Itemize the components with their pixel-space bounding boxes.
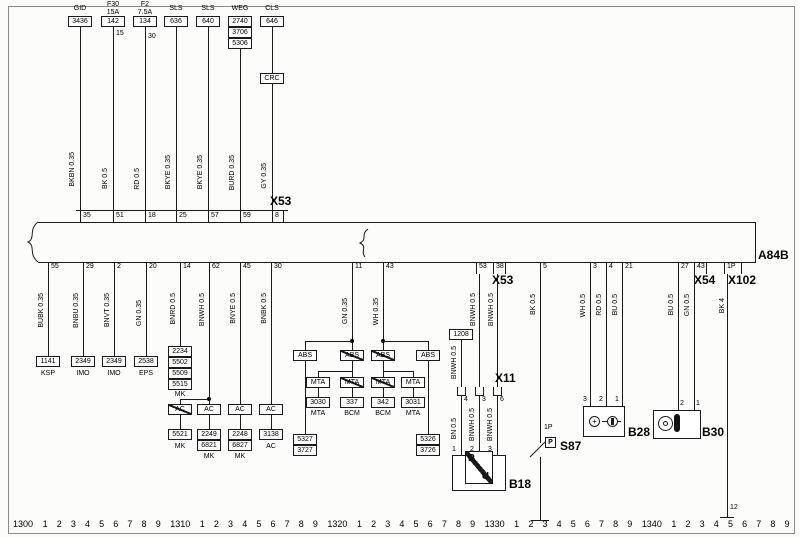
lamp-filament-icon [611, 418, 614, 425]
wire [145, 27, 146, 210]
wiring-diagram: GID 3436 BKBN 0.35 F30 15A 142 15 BK 0.5… [0, 0, 800, 537]
pin-number: 1P [727, 263, 736, 271]
ruler-minor: 6 [423, 519, 437, 531]
pin-tick [113, 210, 114, 222]
frame-left [8, 6, 9, 533]
dest-label: KSP [36, 370, 60, 378]
dest-label: MK [168, 443, 192, 451]
ruler-minor: 7 [123, 519, 137, 531]
wire-label: BNVT 0.35 [104, 293, 112, 327]
pin-number: 57 [211, 212, 219, 220]
pin-number: 1 [696, 400, 700, 408]
wire [180, 274, 181, 346]
wire [540, 457, 541, 520]
ruler-minor: 4 [709, 519, 723, 531]
ruler-major: 1340 [637, 519, 667, 531]
wire-label: BNBK 0.5 [261, 293, 269, 324]
pin-tick [383, 262, 384, 274]
wire-label: BKYE 0.35 [165, 155, 173, 189]
pin-number: 3 [583, 396, 587, 404]
wire-label: BURD 0.35 [229, 155, 237, 190]
pin-tick [272, 210, 273, 222]
ruler-minor: 2 [209, 519, 223, 531]
wire-label: BNWH 0.5 [488, 293, 496, 326]
sensor-u-label: U [482, 471, 489, 482]
ruler-minor: 1 [38, 519, 52, 531]
wire-label: BKBN 0.35 [69, 152, 77, 187]
splice-box-mta: MTA [371, 377, 395, 388]
splice-box-mta: MTA [340, 377, 364, 388]
wire-label: RD 0.5 [134, 168, 142, 190]
splice-box-ac: AC [259, 404, 283, 415]
wire-label: BNBU 0.35 [73, 293, 81, 328]
ruler-minor: 9 [623, 519, 637, 531]
wire [240, 274, 241, 404]
wire [271, 274, 272, 404]
dest-label: MK [197, 453, 221, 461]
pin-tick [622, 262, 623, 274]
pin-number: 55 [51, 263, 59, 271]
pin-number: 2 [117, 263, 121, 271]
pin-number: 3 [593, 263, 597, 271]
ruler-minor: 2 [681, 519, 695, 531]
pin-tick [240, 210, 241, 222]
pin-number: 30 [274, 263, 282, 271]
device-label-s87: S87 [560, 440, 581, 453]
wire-label: BNWH 0.5 [451, 346, 459, 379]
wire [240, 415, 241, 429]
wire-label: RD 0.5 [596, 294, 604, 316]
tap-number: 15 [116, 30, 124, 38]
wire [590, 274, 591, 406]
ruler-minor: 8 [451, 519, 465, 531]
pin-tick [476, 262, 477, 274]
ruler-minor: 4 [395, 519, 409, 531]
wire [383, 361, 384, 377]
pin-number: 14 [183, 263, 191, 271]
ruler-group: 1340123456789 [637, 519, 794, 531]
branch-wire [180, 399, 210, 400]
wire-label: BK 0.5 [530, 294, 538, 315]
wire [352, 388, 353, 397]
pin-number: 62 [212, 263, 220, 271]
pin-number: 43 [386, 263, 394, 271]
ruler-minor: 9 [151, 519, 165, 531]
ruler-minor: 7 [594, 519, 608, 531]
wire [83, 274, 84, 356]
ruler-group: 1300123456789 [8, 519, 165, 531]
ruler-minor: 7 [437, 519, 451, 531]
ruler-minor: 6 [109, 519, 123, 531]
wire [540, 274, 541, 443]
wire [209, 415, 210, 429]
bus-break-symbol [352, 228, 374, 258]
bus-right-edge [755, 222, 756, 263]
wire [80, 27, 81, 210]
ruler-major: 1330 [480, 519, 510, 531]
wire [479, 274, 480, 387]
branch-wire [305, 341, 352, 342]
pin-number: 27 [681, 263, 689, 271]
circuit-ref-box: 3727 [293, 445, 317, 456]
ruler-major: 1320 [322, 519, 352, 531]
ruler-minor: 9 [780, 519, 794, 531]
wire [428, 341, 429, 350]
ruler-minor: 5 [723, 519, 737, 531]
circuit-ref-box: 142 [101, 16, 125, 27]
pressure-sensor-icon: P U [465, 451, 493, 484]
circuit-ref-box: 5327 [293, 434, 317, 445]
splice-box-abs: ABS [371, 350, 395, 361]
pin-tick [271, 262, 272, 274]
ruler-minor: 3 [695, 519, 709, 531]
circuit-ref-box: 5521 [168, 429, 192, 440]
dest-label: IMO [71, 370, 95, 378]
circuit-ref-box: 3030 [306, 397, 330, 408]
ruler-major: 1310 [165, 519, 195, 531]
circuit-ref-box: 6821 [197, 440, 221, 451]
ruler-minor: 5 [95, 519, 109, 531]
ruler-minor: 8 [609, 519, 623, 531]
pin-tick [352, 262, 353, 274]
circuit-ref-box: 640 [196, 16, 220, 27]
ruler-minor: 4 [552, 519, 566, 531]
connector-pin-icon [493, 387, 502, 396]
pin-tick [208, 210, 209, 222]
circuit-ref-box: 2740 [228, 16, 252, 27]
ruler-minor: 5 [252, 519, 266, 531]
ruler-minor: 1 [667, 519, 681, 531]
pin-number: 20 [149, 263, 157, 271]
wire-label: BNWH 0.5 [469, 408, 477, 441]
ruler-minor: 3 [538, 519, 552, 531]
ruler-minor: 8 [294, 519, 308, 531]
ruler-minor: 6 [738, 519, 752, 531]
wire-label: WH 0.5 [580, 294, 588, 317]
wire [272, 84, 273, 210]
wire [622, 274, 623, 406]
ruler-minor: 2 [52, 519, 66, 531]
ruler-minor: 9 [308, 519, 322, 531]
circuit-ref-box: 5306 [228, 38, 252, 49]
circuit-ref-box: 2538 [134, 356, 158, 367]
splice-box-abs: ABS [293, 350, 317, 361]
inline-ref-box: CRC [260, 73, 284, 84]
pin-number: 2 [599, 396, 603, 404]
pin-tick [724, 262, 725, 274]
wire [413, 388, 414, 397]
circuit-ref-box: 2234 [168, 346, 192, 357]
pin-number: 25 [179, 212, 187, 220]
wire-label: BK 4 [719, 298, 727, 313]
wire [497, 396, 498, 455]
pin-number: 43 [697, 263, 705, 271]
wire [606, 274, 607, 406]
dest-label: MTA [306, 410, 330, 418]
circuit-ref-box: 2248 [228, 429, 252, 440]
pin-number: 59 [243, 212, 251, 220]
wire-label: GN 0.35 [136, 300, 144, 326]
coordinate-ruler: 1300123456789131012345678913201234567891… [8, 519, 794, 531]
pin-tick [145, 210, 146, 222]
connector-label-x53-bottom: X53 [492, 274, 513, 287]
ruler-group: 1330123456789 [480, 519, 637, 531]
dest-label: MK [168, 391, 192, 399]
ruler-minor: 6 [580, 519, 594, 531]
wire [678, 274, 679, 410]
ruler-minor: 4 [238, 519, 252, 531]
wire-label: BN 0.5 [451, 418, 459, 439]
connector-label-x11: X11 [495, 372, 516, 385]
pin-tick [180, 262, 181, 274]
pin-row-line [76, 210, 288, 211]
splice-box-mta: MTA [401, 377, 425, 388]
wire [461, 340, 462, 387]
wire [305, 341, 306, 350]
device-label-b18: B18 [509, 478, 531, 491]
pin-tick [540, 262, 541, 274]
tap-number: 30 [148, 33, 156, 41]
wire [727, 274, 728, 517]
wire-label: WH 0.35 [373, 298, 381, 325]
ruler-group: 1310123456789 [165, 519, 322, 531]
wire-label: BUBK 0.35 [38, 293, 46, 328]
dest-label: BCM [340, 410, 364, 418]
dest-label: EPS [134, 370, 158, 378]
wire [208, 27, 209, 210]
ruler-minor: 7 [280, 519, 294, 531]
dest-label: BCM [371, 410, 395, 418]
pin-number: 35 [83, 212, 91, 220]
connector-label-x54: X54 [694, 274, 715, 287]
pin-tick [176, 210, 177, 222]
pin-tick [283, 210, 284, 222]
dest-label: MTA [401, 410, 425, 418]
device-label-b28: B28 [628, 426, 650, 439]
circuit-ref-box: 1141 [36, 356, 60, 367]
pin-tick [83, 262, 84, 274]
wire [479, 396, 480, 455]
pin-tick [606, 262, 607, 274]
pin-tick [209, 262, 210, 274]
circuit-ref-box: 5515 [168, 379, 192, 390]
wire-label: BNRD 0.5 [170, 293, 178, 325]
circuit-ref-box: 3726 [416, 445, 440, 456]
ruler-minor: 8 [766, 519, 780, 531]
circuit-ref-box: 3138 [259, 429, 283, 440]
wire [180, 415, 181, 429]
pin-number: 4 [464, 396, 468, 404]
circuit-ref-box: 1208 [449, 329, 473, 340]
connector-pin-icon [457, 387, 466, 396]
wire-label: BKYE 0.35 [197, 155, 205, 189]
ruler-minor: 1 [195, 519, 209, 531]
ruler-minor: 8 [137, 519, 151, 531]
branch-wire [383, 341, 428, 342]
circuit-ref-box: 3706 [228, 27, 252, 38]
circuit-ref-box: 337 [340, 397, 364, 408]
ruler-minor: 6 [266, 519, 280, 531]
wire [113, 27, 114, 210]
wire [428, 361, 429, 434]
circuit-ref-box: 3436 [68, 16, 92, 27]
branch-wire [318, 371, 352, 372]
ruler-minor: 1 [352, 519, 366, 531]
wire [176, 27, 177, 210]
wire-label: BNWH 0.5 [199, 293, 207, 326]
pin-number: 1 [452, 446, 456, 454]
circuit-ref-box: 636 [164, 16, 188, 27]
circuit-ref-box: 5326 [416, 434, 440, 445]
ruler-minor: 3 [381, 519, 395, 531]
pin-number: 51 [116, 212, 124, 220]
wire-label: GN 0.5 [684, 294, 692, 316]
connector-label-x53-top: X53 [270, 195, 291, 208]
wire [271, 415, 272, 429]
wire-label: BNWH 0.5 [487, 408, 495, 441]
frame-bottom [8, 533, 794, 534]
wire [272, 27, 273, 73]
pin-number: 4 [609, 263, 613, 271]
pin-number: 18 [148, 212, 156, 220]
pin-number: 53 [479, 263, 487, 271]
pressure-switch-icon: P [545, 437, 556, 448]
circuit-ref-box: 134 [133, 16, 157, 27]
wire-label: GY 0.35 [261, 163, 269, 189]
pin-number: 1 [615, 396, 619, 404]
pin-number: 5 [543, 263, 547, 271]
ruler-minor: 3 [223, 519, 237, 531]
wire [209, 274, 210, 404]
wire-label: BU 0.5 [612, 294, 620, 315]
splice-box-abs: ABS [340, 350, 364, 361]
dest-label: MK [228, 453, 252, 461]
module-label-a84b: A84B [758, 249, 789, 262]
circuit-ref-box: 5509 [168, 368, 192, 379]
ruler-minor: 2 [367, 519, 381, 531]
wire [694, 274, 695, 410]
splice-box-ac: AC [168, 404, 192, 415]
bus-left-brace [24, 220, 40, 264]
circuit-ref-box: 2249 [197, 429, 221, 440]
circuit-ref-box: 342 [371, 397, 395, 408]
pin-number: 21 [625, 263, 633, 271]
pin-number: 29 [86, 263, 94, 271]
pin-tick [240, 262, 241, 274]
ruler-major: 1300 [8, 519, 38, 531]
ruler-minor: 3 [66, 519, 80, 531]
ruler-minor: 4 [80, 519, 94, 531]
splice-box-mta: MTA [306, 377, 330, 388]
dest-label: IMO [102, 370, 126, 378]
device-label-b30: B30 [702, 426, 724, 439]
ruler-minor: 9 [466, 519, 480, 531]
connector-label-x102: X102 [728, 274, 756, 287]
wire [461, 396, 462, 455]
splice-box-abs: ABS [416, 350, 440, 361]
circuit-ref-box: 5502 [168, 357, 192, 368]
component-title: CLS [252, 5, 292, 13]
ruler-group: 1320123456789 [322, 519, 479, 531]
wire [318, 388, 319, 397]
display-bar-icon [674, 414, 680, 432]
wire-label: BK 0.5 [102, 168, 110, 189]
pin-tick [114, 262, 115, 274]
wire [146, 274, 147, 356]
wire-label: GN 0.35 [342, 298, 350, 324]
splice-box-ac: AC [197, 404, 221, 415]
wire [352, 361, 353, 377]
wire-end-number: 12 [730, 504, 738, 512]
wire [240, 49, 241, 210]
pin-number: 38 [496, 263, 504, 271]
ruler-minor: 5 [566, 519, 580, 531]
pin-tick [48, 262, 49, 274]
wire-label: BU 0.5 [668, 294, 676, 315]
pin-number: 6 [500, 396, 504, 404]
sensor-p-label: P [468, 453, 475, 464]
splice-box-ac: AC [228, 404, 252, 415]
ruler-minor: 2 [524, 519, 538, 531]
frame-right [794, 6, 795, 534]
pin-number: 3 [482, 396, 486, 404]
circuit-ref-box: 6827 [228, 440, 252, 451]
connector-pin-icon [475, 387, 484, 396]
circuit-ref-box: 646 [260, 16, 284, 27]
circuit-ref-box: 2349 [102, 356, 126, 367]
horn-plus-icon: + [589, 416, 600, 427]
ruler-minor: 5 [409, 519, 423, 531]
clock-center-icon [663, 421, 668, 426]
pin-tick [678, 262, 679, 274]
circuit-ref-box: 3031 [401, 397, 425, 408]
wire [114, 274, 115, 356]
wire-label: BNYE 0.5 [230, 293, 238, 324]
branch-wire [383, 371, 413, 372]
dest-label: AC [259, 443, 283, 451]
circuit-ref-box: 2349 [71, 356, 95, 367]
ruler-minor: 7 [752, 519, 766, 531]
pin-number: 11 [355, 263, 362, 271]
pin-number: 2 [680, 400, 684, 408]
pin-tick [80, 210, 81, 222]
pin-number: 1P [544, 424, 553, 432]
wire-label: BNWH 0.5 [470, 293, 478, 326]
bus-top-line [38, 222, 755, 223]
wire [383, 388, 384, 397]
pin-tick [146, 262, 147, 274]
pin-number: 45 [243, 263, 251, 271]
pin-number: 8 [275, 212, 279, 220]
ruler-minor: 1 [510, 519, 524, 531]
wire [48, 274, 49, 356]
pin-tick [590, 262, 591, 274]
wire-end-tick [720, 517, 734, 518]
